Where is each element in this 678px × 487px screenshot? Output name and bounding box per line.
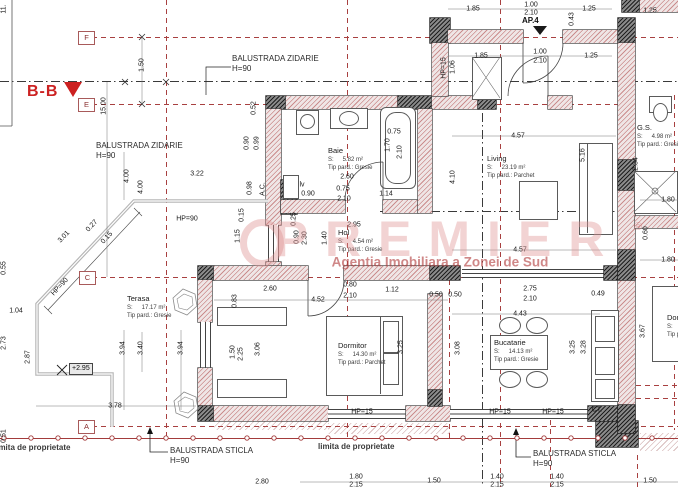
dimension-label: 4.00	[124, 169, 131, 183]
room-name: Dormitor	[338, 341, 385, 351]
dimension-label: 1.40	[490, 474, 504, 481]
leader-arrow	[147, 427, 153, 434]
dimension-label: 0.80	[343, 282, 357, 289]
property-line-circle	[380, 436, 384, 440]
grid-marker-f: F	[78, 31, 95, 45]
dimension-label: 0.75	[336, 186, 350, 193]
dimension-label: 3.25	[398, 340, 405, 354]
room-label: LivingS:23.19 m²Tip pard.: Parchet	[487, 154, 534, 180]
property-line-circle	[164, 436, 168, 440]
room-floor-type: Tip pard.: Gresie	[328, 164, 372, 172]
dimension-label: 3.40	[138, 341, 145, 355]
dimension-label: 0.51	[1, 429, 8, 443]
dimension-label: 2.30	[302, 231, 309, 245]
dimension-label: lv	[299, 182, 304, 189]
dimension-label: 3.94	[178, 341, 185, 355]
dimension-label: 2.75	[523, 286, 537, 293]
property-limit-label: limita de proprietate	[0, 443, 70, 452]
dimension-label: 2.95	[347, 222, 361, 229]
dimension-label: 4.10	[450, 170, 457, 184]
property-line-circle	[56, 436, 60, 440]
dimension-label: 0.43	[569, 12, 576, 26]
dimension-label: 1.25	[643, 8, 657, 15]
leader-arrow	[513, 428, 519, 435]
neighbor-building-edge	[0, 0, 12, 126]
apartment-entrance-label: AP.4	[522, 16, 539, 25]
dimension-label: 1.50	[230, 345, 237, 359]
dimension-label: 2.80	[255, 479, 269, 486]
dimension-label: 2.73	[1, 336, 8, 350]
leader-line	[206, 67, 231, 95]
dimension-label: 2.10	[523, 296, 537, 303]
room-floor-type: Tip pard.:	[667, 331, 678, 339]
dimension-label: 0.52	[251, 101, 258, 115]
room-name: G.S.	[637, 123, 678, 133]
dimension-label: 3.08	[455, 341, 462, 355]
dimension-label: 0.15	[239, 208, 246, 222]
dimension-label: 3.22	[190, 171, 204, 178]
dimension-label: 2.87	[25, 350, 32, 364]
dimension-label: 3.67	[640, 324, 647, 338]
entrance-arrow-icon	[533, 26, 547, 35]
annotation-text: BALUSTRADA ZIDARIE	[96, 141, 183, 150]
room-label: BaieS:5.82 m²Tip pard.: Gresie	[328, 146, 372, 172]
dimension-label: 1.06	[450, 60, 457, 74]
room-floor-type: Tip pard.: Gresie	[637, 141, 678, 149]
dimension-label: 1.15	[235, 229, 242, 243]
property-line-circle	[272, 436, 276, 440]
room-floor-type: Tip pard.: Gresie	[338, 246, 382, 254]
dimension-label: 1.04	[9, 308, 23, 315]
shower-diagonals	[634, 171, 676, 212]
dimension-label: 1.12	[385, 287, 399, 294]
dimension-label: 11.	[1, 4, 8, 13]
property-line-circle	[29, 436, 33, 440]
balustrade-label: BALUSTRADA ZIDARIEH=90	[96, 141, 183, 161]
grid-marker-a: A	[78, 420, 95, 434]
dimension-label: A.C.	[260, 182, 267, 196]
hexagon-paver	[174, 392, 198, 418]
property-line-circle	[110, 436, 114, 440]
annotation-text: BALUSTRADA STICLA	[533, 449, 616, 458]
dimension-label: 2.15	[490, 482, 504, 487]
dimension-label: 0.90	[244, 136, 251, 150]
dimension-label: 1.70	[385, 138, 392, 152]
room-name: Bucatarie	[494, 338, 538, 348]
property-line-circle	[515, 436, 519, 440]
dimension-label: 1.85	[474, 53, 488, 60]
annotation-sub: H=90	[232, 64, 319, 74]
dimension-label: 0.98	[247, 181, 254, 195]
dimension-label: 0.50	[429, 292, 443, 299]
dimension-label: CT.	[592, 407, 603, 414]
dimension-label: 1.00	[533, 49, 547, 56]
room-label: G.S.S:4.98 m²Tip pard.: Gresie	[637, 123, 678, 149]
dimension-label: 1.50	[427, 478, 441, 485]
dimension-label: 4.00	[138, 180, 145, 194]
room-floor-type: Tip pard.: Gresie	[494, 356, 538, 364]
dimension-label: HP=15	[489, 409, 511, 416]
section-marker-icon	[64, 82, 82, 97]
dimension-label: 1.00	[524, 2, 538, 9]
dimension-label: 2.10	[533, 58, 547, 65]
balustrade-label: BALUSTRADA STICLAH=90	[170, 446, 253, 466]
shower-drain	[652, 188, 658, 194]
dimension-label: 2.60	[340, 174, 354, 181]
dimension-label: 0.90	[301, 191, 315, 198]
room-area: S:14.13 m²	[494, 348, 538, 356]
room-area: S:5.82 m²	[328, 156, 372, 164]
dimension-label: HP=15	[441, 57, 448, 79]
dimension-label: 2.60	[263, 286, 277, 293]
dimension-label: 3.78	[108, 403, 122, 410]
dimension-label: 2.10	[397, 145, 404, 159]
dimension-label: 1.80	[661, 257, 675, 264]
property-line-circle	[83, 436, 87, 440]
dimension-label: 2.10	[343, 293, 357, 300]
balustrade-label: BALUSTRADA ZIDARIEH=90	[232, 54, 319, 74]
room-area: S:4.54 m²	[338, 238, 382, 246]
elevation-marker: +2.95	[69, 363, 93, 375]
dimension-label: 1.40	[322, 231, 329, 245]
dimension-label: HP=15	[542, 409, 564, 416]
dimension-label: 1.50	[139, 58, 146, 72]
axis-tick	[163, 79, 169, 85]
closet-diagonals	[472, 57, 500, 98]
axis-tick	[122, 79, 128, 85]
balustrade-label: BALUSTRADA STICLAH=90	[533, 449, 616, 469]
room-name: Hol	[338, 228, 382, 238]
room-area: S:	[667, 323, 678, 331]
dimension-label: 4.43	[513, 311, 527, 318]
dimension-label: 3.06	[255, 342, 262, 356]
dimension-label: 1.25	[582, 6, 596, 13]
property-limit-label: limita de proprietate	[318, 442, 394, 451]
dimension-label: HP=15	[351, 409, 373, 416]
dimension-label: 2.25	[238, 347, 245, 361]
property-line-circle	[245, 436, 249, 440]
room-name: Terasa	[127, 294, 171, 304]
room-label: DormitorS:14.30 m²Tip pard.: Parchet	[338, 341, 385, 367]
room-name: Baie	[328, 146, 372, 156]
property-line-circle	[434, 436, 438, 440]
dimension-label: 0.83	[232, 294, 239, 308]
room-area: S:4.98 m²	[637, 133, 678, 141]
floor-plan-canvas: B-B AP.4 +2.95 FECA BaieS:5.82 m²Tip par…	[0, 0, 678, 487]
property-line-circle	[299, 436, 303, 440]
annotation-text: BALUSTRADA ZIDARIE	[232, 54, 319, 63]
dimension-label: 4.57	[511, 133, 525, 140]
hexagon-paver-inner	[178, 397, 194, 413]
room-label: HolS:4.54 m²Tip pard.: Gresie	[338, 228, 382, 254]
property-line-circle	[650, 436, 654, 440]
annotation-sub: H=90	[533, 459, 616, 469]
dimension-label: 0.49	[591, 291, 605, 298]
dimension-label: 0.55	[1, 261, 8, 275]
dimension-label: 1.80	[349, 474, 363, 481]
dimension-label: 1.80	[661, 197, 675, 204]
room-name: Living	[487, 154, 534, 164]
dimension-label: 3.28	[581, 340, 588, 354]
hexagon-paver	[173, 289, 197, 315]
property-line-circle	[407, 436, 411, 440]
room-floor-type: Tip pard.: Parchet	[487, 172, 534, 180]
property-line-circle	[569, 436, 573, 440]
dimension-label: 1.25	[584, 53, 598, 60]
dimension-label: 1.85	[466, 6, 480, 13]
annotation-sub: H=90	[170, 456, 253, 466]
dimension-label: 3.94	[120, 341, 127, 355]
room-label: BucatarieS:14.13 m²Tip pard.: Gresie	[494, 338, 538, 364]
dimension-label: 0.50	[448, 292, 462, 299]
room-area: S:23.19 m²	[487, 164, 534, 172]
section-marker-label: B-B	[27, 83, 58, 101]
room-area: S:17.17 m²	[127, 304, 171, 312]
room-name: Dormitor	[667, 313, 678, 323]
property-line-circle	[542, 436, 546, 440]
dimension-label: 2.10	[337, 196, 351, 203]
property-line-circle	[218, 436, 222, 440]
room-label: TerasaS:17.17 m²Tip pard.: Gresie	[127, 294, 171, 320]
dimension-label: 0.25	[291, 212, 298, 226]
property-line-circle	[191, 436, 195, 440]
property-line-circle	[488, 436, 492, 440]
dimension-label: 2.15	[550, 482, 564, 487]
dimension-label: 2.34	[633, 157, 640, 171]
dimension-label: 1.50	[643, 478, 657, 485]
property-line-circle	[596, 436, 600, 440]
dimension-label: HP=90	[176, 216, 198, 223]
room-floor-type: Tip pard.: Gresie	[127, 312, 171, 320]
property-line-circle	[137, 436, 141, 440]
dimension-label: 1.40	[550, 474, 564, 481]
leader-line	[150, 431, 168, 452]
room-floor-type: Tip pard.: Parchet	[338, 359, 385, 367]
dimension-label: 0.60	[643, 226, 650, 240]
property-line-circle	[461, 436, 465, 440]
dimension-label: 4.57	[513, 247, 527, 254]
property-line-circle	[353, 436, 357, 440]
hexagon-paver-inner	[177, 294, 193, 310]
dimension-label: 15.00	[101, 97, 108, 115]
dimension-label: 0.90	[294, 230, 301, 244]
property-line-circle	[623, 436, 627, 440]
dimension-label: 0.99	[254, 136, 261, 150]
dimension-label: 1.14	[379, 191, 393, 198]
dimension-label: 3.25	[570, 340, 577, 354]
dimension-label: 2.15	[349, 482, 363, 487]
annotation-sub: H=90	[96, 151, 183, 161]
property-line-circle	[326, 436, 330, 440]
dimension-label: 4.52	[311, 297, 325, 304]
dimension-label: 5.16	[580, 148, 587, 162]
annotation-text: BALUSTRADA STICLA	[170, 446, 253, 455]
dimension-label: 0.75	[387, 129, 401, 136]
room-label: DormitorS:Tip pard.:	[667, 313, 678, 339]
room-area: S:14.30 m²	[338, 351, 385, 359]
grid-marker-e: E	[78, 98, 95, 112]
grid-marker-c: C	[79, 271, 96, 285]
